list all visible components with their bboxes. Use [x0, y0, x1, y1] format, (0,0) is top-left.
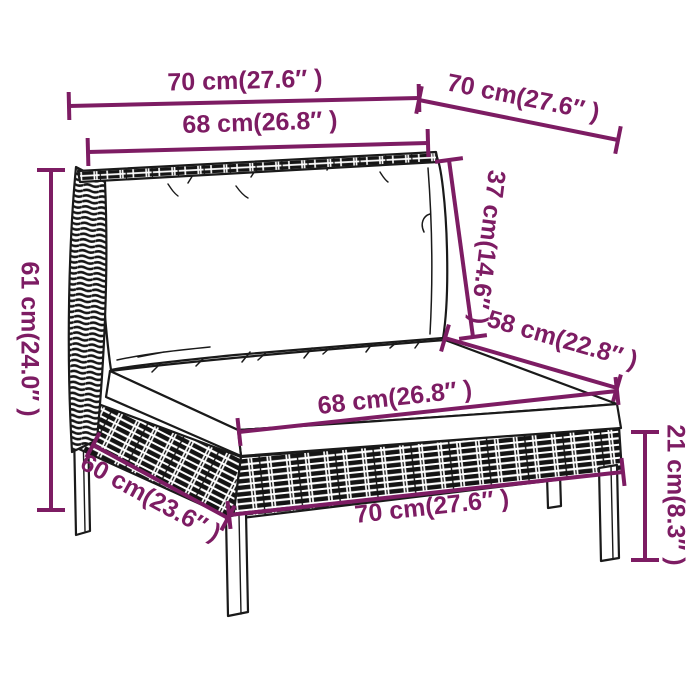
dim-label-seat-height: 21 cm(8.3″ ): [661, 424, 689, 565]
dim-tick-end-back-cushion-width: [428, 129, 429, 157]
dim-label-top-width: 70 cm(27.6″ ): [167, 65, 323, 97]
dim-tick-start-top-width: [69, 92, 70, 120]
dim-label-back-cushion-width: 68 cm(26.8″ ): [182, 106, 338, 139]
dim-label-overall-height: 61 cm(24.0″ ): [15, 261, 43, 416]
back-cushion-body: [94, 156, 447, 370]
dimension-diagram-page: 70 cm(27.6″ )70 cm(27.6″ )68 cm(26.8″ )3…: [0, 0, 700, 700]
front-right-leg: [599, 465, 619, 561]
back-cushion: [94, 156, 447, 370]
sofa-dimension-diagram: 70 cm(27.6″ )70 cm(27.6″ )68 cm(26.8″ )3…: [0, 0, 700, 700]
dim-tick-start-back-cushion-width: [88, 138, 89, 166]
